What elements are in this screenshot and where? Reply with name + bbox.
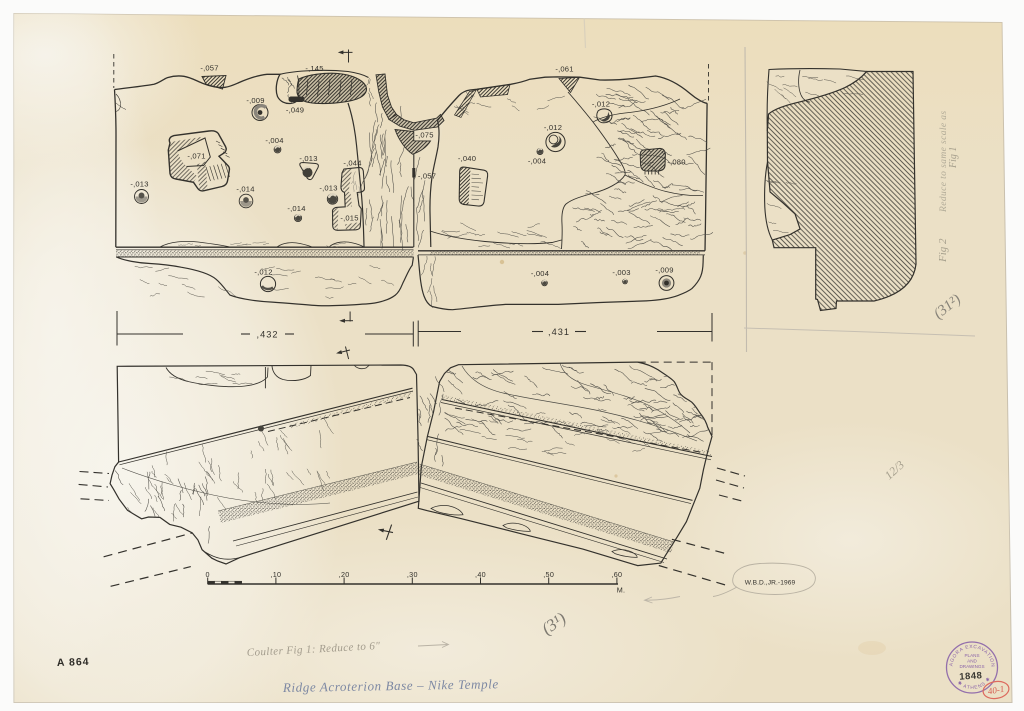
svg-text:-,012: -,012 (592, 100, 610, 109)
svg-text:-,004: -,004 (265, 136, 283, 145)
svg-text:-,004: -,004 (531, 269, 549, 278)
svg-text:DRAWINGS: DRAWINGS (959, 664, 984, 669)
svg-text:-,057: -,057 (418, 172, 436, 181)
svg-text:,20: ,20 (339, 570, 350, 579)
svg-text:-,057: -,057 (200, 64, 218, 73)
svg-text:W.B.D.,JR.-1969: W.B.D.,JR.-1969 (745, 580, 796, 587)
svg-text:Fig 1: Fig 1 (948, 147, 959, 169)
svg-text:-,004: -,004 (528, 157, 546, 166)
svg-text:-,009: -,009 (655, 266, 673, 275)
svg-text:-,061: -,061 (555, 65, 573, 74)
svg-text:,10: ,10 (270, 570, 281, 579)
svg-text:-,013: -,013 (319, 184, 337, 193)
svg-text:-,003: -,003 (612, 268, 630, 277)
svg-text:-,014: -,014 (287, 204, 305, 213)
svg-text:M.: M. (617, 586, 625, 595)
svg-text:,60: ,60 (611, 570, 622, 579)
svg-text:AND: AND (967, 659, 977, 664)
svg-text:-,015: -,015 (340, 214, 358, 223)
svg-text:,50: ,50 (543, 570, 554, 579)
svg-text:-,009: -,009 (246, 96, 264, 105)
svg-text:,30: ,30 (407, 570, 418, 579)
svg-text:-,145: -,145 (305, 64, 323, 73)
svg-text:,40: ,40 (475, 570, 486, 579)
svg-text:-,040: -,040 (458, 154, 476, 163)
svg-text:-,071: -,071 (187, 152, 205, 161)
svg-text:Fig 2: Fig 2 (937, 238, 949, 263)
svg-text:-,049: -,049 (286, 106, 304, 115)
svg-text:-,012: -,012 (254, 268, 272, 277)
svg-text:-,080: -,080 (667, 158, 685, 167)
svg-text:-,075: -,075 (415, 131, 433, 140)
svg-text:1848: 1848 (959, 670, 983, 683)
svg-text:,431: ,431 (548, 327, 570, 337)
svg-text:-,014: -,014 (236, 185, 254, 194)
svg-text:PLANS: PLANS (964, 653, 979, 658)
svg-text:-,013: -,013 (299, 154, 317, 163)
svg-text:,432: ,432 (257, 330, 279, 340)
svg-text:-,013: -,013 (130, 180, 148, 189)
svg-text:A 864: A 864 (57, 656, 90, 669)
svg-text:-,012: -,012 (544, 123, 562, 132)
svg-text:0: 0 (206, 570, 210, 579)
